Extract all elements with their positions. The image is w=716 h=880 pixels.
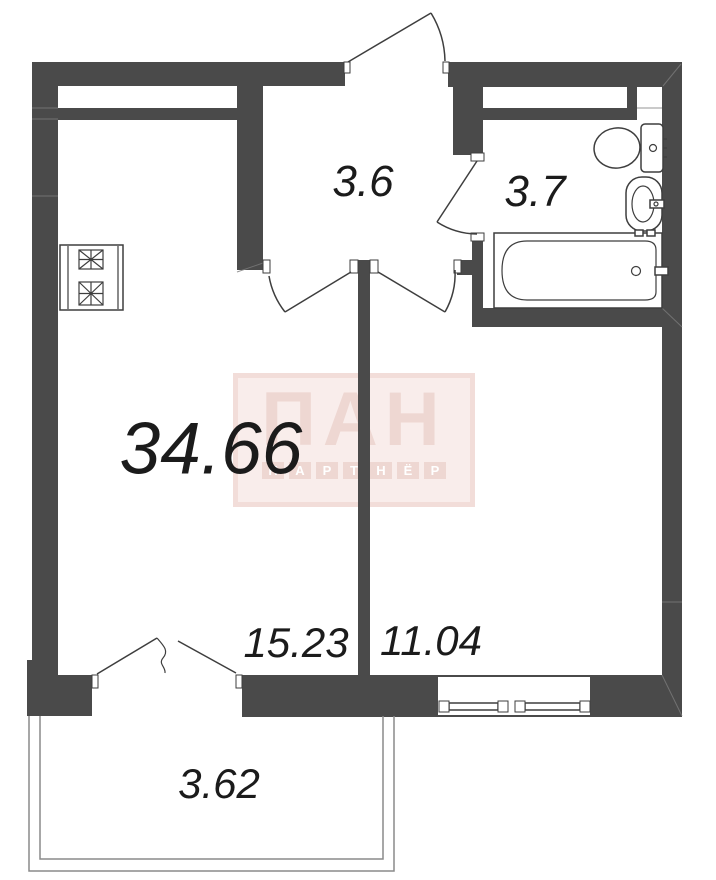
bathroom-door	[437, 153, 484, 241]
area-label-hallway: 3.6	[332, 160, 393, 204]
area-label-bedroom: 11.04	[380, 620, 482, 662]
window-symbol	[438, 677, 590, 715]
kitchen-door	[263, 260, 358, 312]
stove-icon	[60, 245, 123, 310]
area-label-living-zone: 15.23	[243, 622, 348, 664]
entrance-door	[344, 13, 449, 73]
toilet-icon	[591, 124, 667, 172]
area-label-kitchen-living: 34.66	[120, 413, 303, 486]
balcony-door	[92, 638, 242, 688]
area-label-bathroom: 3.7	[504, 170, 565, 214]
floor-plan: ПАН П А Р Т Н Ё Р	[0, 0, 716, 880]
bathtub-icon	[494, 230, 668, 308]
sink-icon	[626, 177, 664, 231]
plan-drawing	[0, 0, 716, 880]
bedroom-door	[370, 260, 461, 312]
area-label-balcony: 3.62	[178, 763, 260, 805]
